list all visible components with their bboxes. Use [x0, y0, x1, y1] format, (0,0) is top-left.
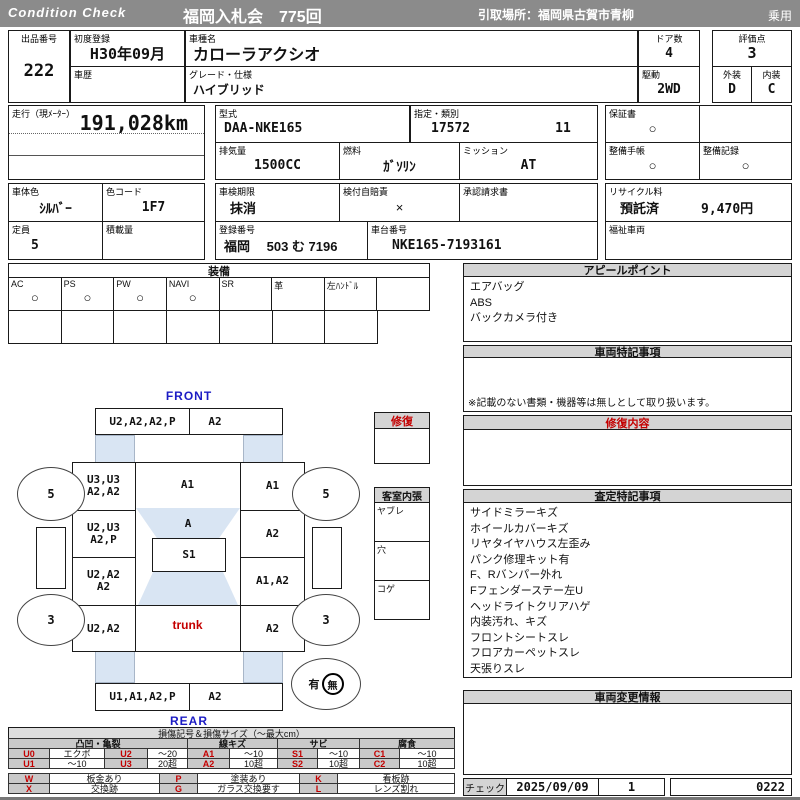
assessment-line: Fフェンダーステー左U [470, 584, 785, 600]
equipment-empty-cell [62, 310, 115, 344]
check-code: 0222 [671, 779, 791, 795]
appeal-line: バックカメラ付き [470, 311, 785, 327]
doc-blank-cell [699, 105, 792, 143]
equipment-mark-ps: ○ [62, 278, 114, 310]
legend-row-4: X 交換跡 G ガラス交換要す L レンズ割れ [8, 783, 455, 794]
maintenance-book-cell: 整備手帳 ○ [605, 142, 700, 180]
equipment-title: 装備 [9, 264, 429, 277]
change-info-content [463, 703, 792, 775]
special-notes-disclaimer: ※記載のない書類・機器等は無しとして取り扱います。 [468, 394, 715, 409]
equipment-cell-navi: NAVI○ [167, 277, 220, 311]
assessment-line: 内装汚れ、キズ [470, 615, 785, 631]
legend-code: U3 [105, 758, 148, 769]
right-step-panel [312, 527, 342, 589]
history-value [71, 76, 184, 102]
warranty-mark: ○ [606, 115, 699, 142]
check-label: チェック [465, 780, 505, 795]
header-bar: Condition Check 福岡入札会 775回 引取場所：福岡県古賀市青柳… [0, 0, 800, 27]
model-name-value: カローラアクシオ [186, 40, 637, 66]
fuel-cell: 燃料 ｶﾞｿﾘﾝ [339, 142, 460, 180]
rear-bumper: U1,A1,A2,P A2 [95, 683, 283, 711]
legend-code: U1 [8, 758, 50, 769]
lot-number-value: 222 [9, 40, 69, 102]
cabin-row-burn-label: コゲ [377, 582, 395, 595]
left-front-door-damage: U2,U3 A2,P [72, 510, 135, 557]
assessment-line: フロアカーペットスレ [470, 646, 785, 662]
repair-flag-title: 修復 [391, 413, 413, 429]
change-info-header: 車両変更情報 [463, 690, 792, 704]
load-capacity-value [103, 231, 204, 259]
equipment-mark-pw: ○ [114, 278, 166, 310]
warranty-cell: 保証書 ○ [605, 105, 700, 143]
windshield-damage: A [185, 517, 192, 530]
cabin-row-tear: ヤブレ [374, 502, 430, 542]
equipment-empty-cell [325, 310, 378, 344]
rear-right-pillar [243, 651, 283, 683]
displacement-cell: 排気量 1500CC [215, 142, 340, 180]
exterior-grade-value: D [713, 76, 751, 102]
legend-value: 10超 [318, 758, 360, 769]
cabin-row-hole: 穴 [374, 541, 430, 581]
approval-value [460, 193, 597, 221]
equipment-empty-cell [273, 310, 326, 344]
recycle-fee-value: 9,470円 [701, 198, 753, 217]
drive-value: 2WD [639, 76, 699, 102]
pickup-place: 引取場所：福岡県古賀市青柳 [478, 6, 634, 23]
legend-value: ガラス交換要す [198, 783, 300, 794]
interior-grade-cell: 内装 C [751, 66, 792, 103]
class-number-value: 17572 [431, 121, 470, 136]
transmission-cell: ミッション AT [459, 142, 598, 180]
condition-check-sheet: Condition Check 福岡入札会 775回 引取場所：福岡県古賀市青柳… [0, 0, 800, 800]
inspection-value: 抹消 [216, 193, 339, 221]
legend-code: C2 [360, 758, 400, 769]
right-front-door-damage: A2 [240, 510, 305, 557]
legend-value: 10超 [230, 758, 278, 769]
equipment-cell-pw: PW○ [114, 277, 167, 311]
color-code-value: 1F7 [103, 193, 204, 221]
equipment-mark-ac: ○ [9, 278, 61, 310]
right-rear-door-damage: A1,A2 [240, 557, 305, 605]
mileage-divider-dotted [9, 133, 204, 134]
front-bumper: U2,A2,A2,P A2 [95, 408, 283, 435]
repair-flag-content [374, 428, 430, 464]
legend-value: 20超 [148, 758, 188, 769]
drive-cell: 駆動 2WD [638, 66, 700, 103]
rear-bumper-left-damage: U1,A1,A2,P [96, 684, 189, 710]
front-left-tire: 5 [17, 467, 85, 521]
recycle-status-value: 預託済 [620, 198, 659, 217]
score-value: 3 [713, 40, 791, 66]
repair-detail-header: 修復内容 [463, 415, 792, 430]
assessment-line: F、Rバンパー外れ [470, 568, 785, 584]
legend-code: A2 [188, 758, 230, 769]
legend-code: G [160, 783, 198, 794]
front-left-pillar [95, 435, 135, 463]
legend-value: 交換跡 [50, 783, 160, 794]
plate-number-value: 福岡 503 む 7196 [216, 231, 367, 259]
appeal-content: エアバッグ ABS バックカメラ付き [463, 276, 792, 342]
front-right-pillar [243, 435, 283, 463]
legend-code: S2 [278, 758, 318, 769]
check-label-cell: チェック [463, 778, 507, 796]
body-color-value: ｼﾙﾊﾞｰ [9, 193, 102, 221]
assessment-content: サイドミラーキズ ホイールカバーキズ リヤタイヤハウス左歪み パンク修理キット有… [463, 502, 792, 678]
check-date-box: 2025/09/09 1 [506, 778, 665, 796]
approval-cell: 承認請求書 [459, 183, 598, 222]
equipment-empty-cell [220, 310, 273, 344]
cabin-header: 客室内張 [374, 487, 430, 503]
load-capacity-cell: 積載量 [102, 221, 205, 260]
appeal-header: アピールポイント [463, 263, 792, 277]
brand-title: Condition Check [8, 5, 126, 20]
fuel-value: ｶﾞｿﾘﾝ [340, 152, 459, 179]
class-sub-value: 11 [555, 121, 571, 136]
inspection-cell: 車検期限 抹消 [215, 183, 340, 222]
marker-no-circled: 無 [322, 673, 344, 695]
equipment-mark-sr [220, 278, 272, 310]
maintenance-record-cell: 整備記録 ○ [699, 142, 792, 180]
lot-number-cell: 出品番号 222 [8, 30, 70, 103]
presence-marker: 有 無 [291, 658, 361, 710]
capacity-value: 5 [9, 231, 102, 259]
score-cell: 評価点 3 [712, 30, 792, 67]
recycle-fee-values: 預託済 9,470円 [606, 193, 791, 221]
marker-yes: 有 [309, 676, 320, 692]
equipment-cell-lhd: 左ﾊﾝﾄﾞﾙ [325, 277, 378, 311]
model-code-cell: 型式 DAA-NKE165 [215, 105, 410, 143]
hood-damage: A1 [135, 462, 240, 508]
check-count: 1 [599, 779, 664, 795]
check-code-box: 0222 [670, 778, 792, 796]
equipment-cell-sr: SR [220, 277, 273, 311]
interior-grade-value: C [752, 76, 791, 102]
mileage-cell: 走行（現ﾒｰﾀｰ） 191,028km [8, 105, 205, 180]
equipment-empty-cell [8, 310, 62, 344]
equipment-cell-ps: PS○ [62, 277, 115, 311]
left-step-panel [36, 527, 66, 589]
class-number-cell: 指定・類別 17572 11 [410, 105, 598, 143]
assessment-line: パンク修理キット有 [470, 553, 785, 569]
cabin-row-burn: コゲ [374, 580, 430, 620]
equipment-row-empty [8, 310, 378, 344]
appeal-line: エアバッグ [470, 280, 785, 296]
assessment-line: フロントシートスレ [470, 631, 785, 647]
class-number-values: 17572 11 [411, 115, 597, 142]
equipment-cell-ac: AC○ [8, 277, 62, 311]
rear-bumper-right-damage: A2 [190, 684, 240, 710]
equipment-row: AC○ PS○ PW○ NAVI○ SR 革 左ﾊﾝﾄﾞﾙ [8, 277, 430, 311]
assessment-line: リヤタイヤハウス左歪み [470, 537, 785, 553]
legend-code: X [8, 783, 50, 794]
mileage-divider-solid [9, 155, 204, 156]
recycle-fee-cell: リサイクル料 預託済 9,470円 [605, 183, 792, 222]
equipment-empty-cell [114, 310, 167, 344]
body-color-cell: 車体色 ｼﾙﾊﾞｰ [8, 183, 103, 222]
vin-value: NKE165-7193161 [368, 231, 597, 259]
special-notes-content: ※記載のない書類・機器等は無しとして取り扱います。 [463, 357, 792, 412]
grade-cell: グレード・仕様 ハイブリッド [185, 66, 638, 103]
equipment-mark-lhd [325, 278, 377, 310]
legend-value: 〜10 [50, 758, 105, 769]
mileage-value: 191,028km [9, 114, 204, 132]
roof-panel: S1 [152, 538, 226, 572]
vin-cell: 車台番号 NKE165-7193161 [367, 221, 598, 260]
repair-detail-content [463, 429, 792, 486]
rear-left-tire-depth: 3 [47, 613, 54, 627]
displacement-value: 1500CC [216, 152, 339, 179]
doors-cell: ドア数 4 [638, 30, 700, 67]
front-bumper-left-damage: U2,A2,A2,P [96, 409, 189, 434]
insurance-cell: 検付自賠責 × [339, 183, 460, 222]
cabin-title: 客室内張 [382, 488, 422, 503]
legend-value: レンズ割れ [338, 783, 455, 794]
assessment-header: 査定特記事項 [463, 489, 792, 503]
rear-window [138, 572, 238, 605]
equipment-empty-cell [167, 310, 220, 344]
cabin-row-hole-label: 穴 [377, 543, 386, 556]
insurance-mark: × [340, 193, 459, 221]
vehicle-category: 乗用 [768, 7, 792, 24]
equipment-cell-extra [377, 277, 430, 311]
auction-title: 福岡入札会 775回 [183, 3, 322, 27]
assessment-line: ヘッドライトクリアハゲ [470, 600, 785, 616]
trunk-label: trunk [135, 605, 240, 645]
front-right-tire-depth: 5 [322, 487, 329, 501]
transmission-value: AT [460, 152, 597, 179]
assessment-line: 天張りスレ [470, 662, 785, 678]
equipment-mark-leather [272, 278, 324, 310]
maintenance-book-mark: ○ [606, 152, 699, 179]
rear-left-tire: 3 [17, 594, 85, 646]
grade-value: ハイブリッド [186, 76, 637, 102]
front-bumper-right-damage: A2 [190, 409, 240, 434]
exterior-grade-cell: 外装 D [712, 66, 752, 103]
appeal-line: ABS [470, 296, 785, 312]
legend-row-2: U1 〜10 U3 20超 A2 10超 S2 10超 C2 10超 [8, 758, 455, 769]
capacity-cell: 定員 5 [8, 221, 103, 260]
front-right-tire: 5 [292, 467, 360, 521]
maintenance-record-mark: ○ [700, 152, 791, 179]
left-rear-door-damage: U2,A2 A2 [72, 557, 135, 605]
welfare-vehicle-cell: 福祉車両 [605, 221, 792, 260]
model-code-value: DAA-NKE165 [216, 115, 409, 142]
plate-number-cell: 登録番号 福岡 503 む 7196 [215, 221, 368, 260]
rear-left-pillar [95, 651, 135, 683]
legend-value: 10超 [400, 758, 455, 769]
check-date: 2025/09/09 [507, 779, 598, 795]
cabin-row-tear-label: ヤブレ [377, 504, 404, 517]
diagram-front-label: FRONT [95, 389, 283, 403]
roof-damage: S1 [182, 549, 195, 561]
legend-code: L [300, 783, 338, 794]
color-code-cell: 色コード 1F7 [102, 183, 205, 222]
assessment-line: ホイールカバーキズ [470, 522, 785, 538]
front-left-tire-depth: 5 [47, 487, 54, 501]
welfare-vehicle-value [606, 231, 791, 259]
equipment-cell-leather: 革 [272, 277, 325, 311]
history-cell: 車歴 [70, 66, 185, 103]
first-registration-cell: 初度登録 H30年09月 [70, 30, 185, 67]
rear-right-tire-depth: 3 [322, 613, 329, 627]
doors-value: 4 [639, 40, 699, 66]
equipment-mark-extra [377, 278, 429, 310]
equipment-header: 装備 [8, 263, 430, 278]
model-name-cell: 車種名 カローラアクシオ [185, 30, 638, 67]
equipment-mark-navi: ○ [167, 278, 219, 310]
assessment-line: サイドミラーキズ [470, 506, 785, 522]
rear-right-tire: 3 [292, 594, 360, 646]
first-registration-value: H30年09月 [71, 40, 184, 66]
repair-flag-header: 修復 [374, 412, 430, 429]
